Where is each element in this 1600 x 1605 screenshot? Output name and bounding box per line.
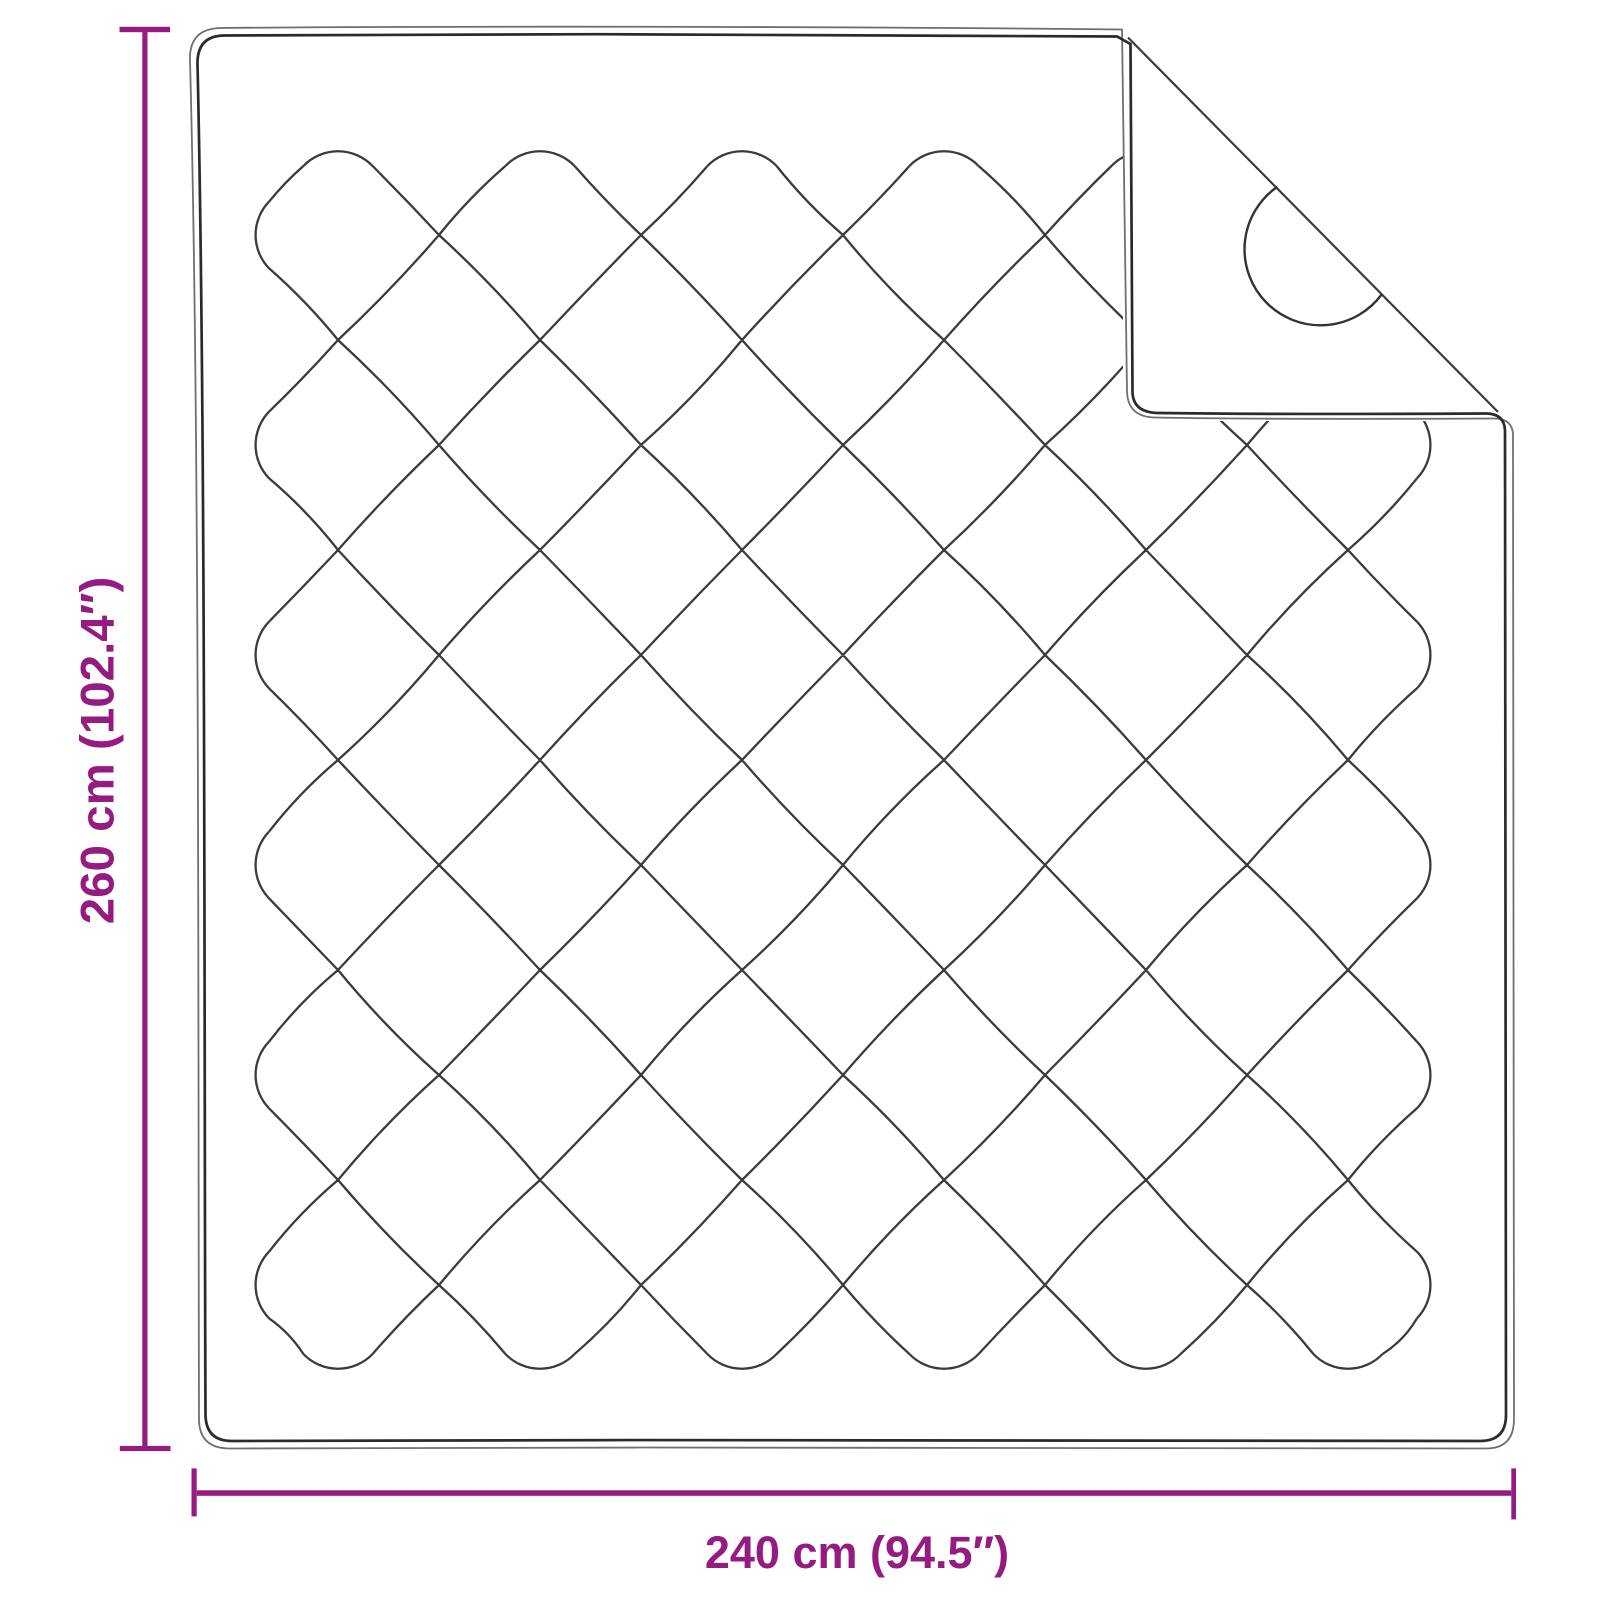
svg-text:260 cm (102.4″): 260 cm (102.4″) bbox=[72, 577, 125, 925]
svg-text:240 cm (94.5″): 240 cm (94.5″) bbox=[705, 1527, 1009, 1578]
